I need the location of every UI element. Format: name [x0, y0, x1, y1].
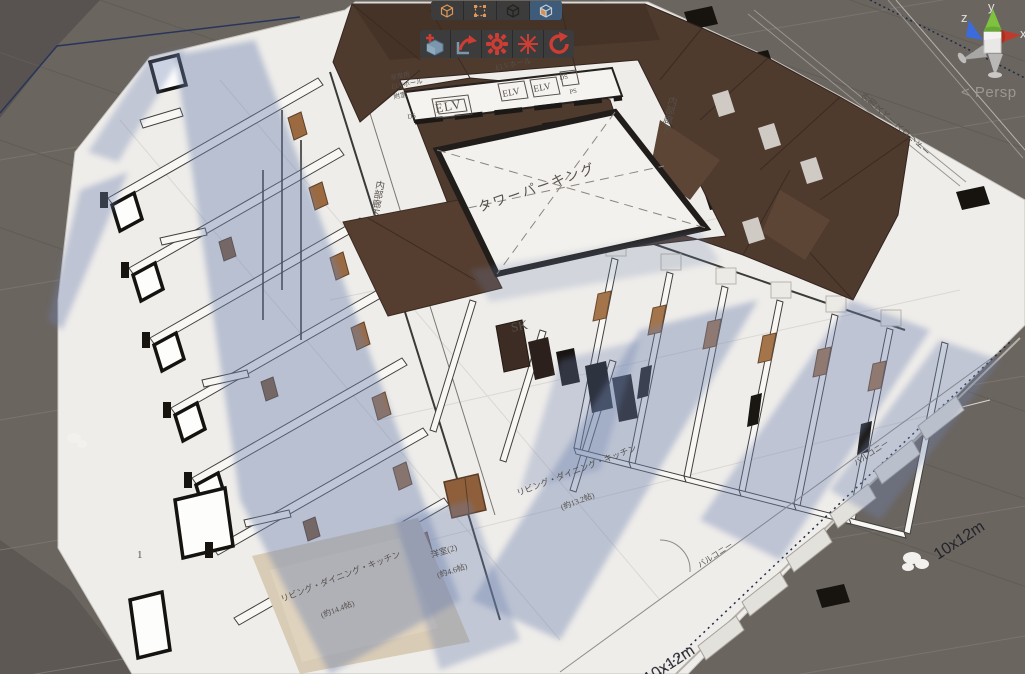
scene-viewport[interactable]: タワーパーキング ELVホール ELV ELV ELV DS PS DS 非常用…: [0, 0, 1025, 674]
scene-gizmo[interactable]: y z x < Persp: [947, 0, 1025, 112]
point-light-button[interactable]: [513, 30, 544, 58]
shaded-cube-button-selected[interactable]: [530, 1, 562, 20]
add-cube-icon: [423, 32, 447, 56]
rotate-button[interactable]: [544, 30, 574, 58]
gizmo-x-label: x: [1020, 26, 1025, 41]
gear-icon: [485, 32, 509, 56]
rotate-icon: [547, 32, 571, 56]
gizmo-neg-axis-2-base: [988, 72, 1002, 78]
wire-cube-icon: [440, 4, 454, 18]
view-mode-toolbar: [431, 1, 562, 20]
gizmo-projection-label[interactable]: < Persp: [961, 84, 1017, 101]
wire-cube-button[interactable]: [431, 1, 464, 20]
add-cube-button[interactable]: [420, 30, 451, 58]
gizmo-z-axis[interactable]: [966, 20, 983, 40]
dark-cube-button[interactable]: [497, 1, 530, 20]
selection-rect-button[interactable]: [464, 1, 497, 20]
shaded-cube-icon: [539, 4, 553, 18]
selection-rect-icon: [473, 4, 487, 18]
gizmo-y-label: y: [988, 0, 995, 14]
point-light-icon: [516, 32, 540, 56]
gear-button[interactable]: [482, 30, 513, 58]
label-room-digit: 1: [137, 549, 143, 561]
dark-cube-icon: [506, 4, 520, 18]
export-arrow-icon: [454, 32, 478, 56]
export-arrow-button[interactable]: [451, 30, 482, 58]
gizmo-z-label: z: [961, 10, 968, 25]
tools-toolbar: [420, 30, 574, 58]
